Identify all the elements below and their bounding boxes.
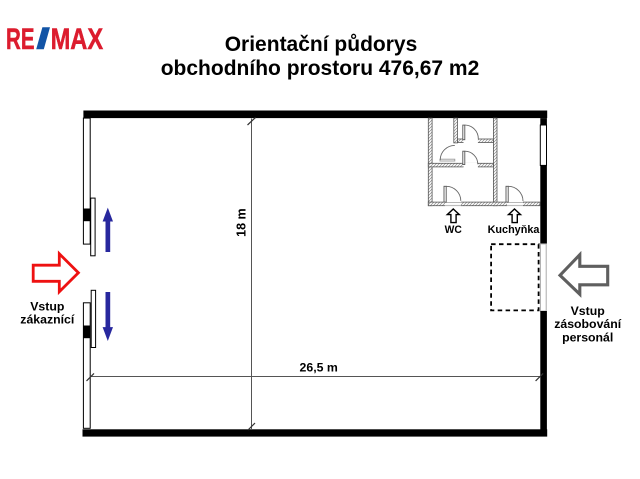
svg-text:obchodního prostoru 476,67 m2: obchodního prostoru 476,67 m2 (161, 57, 480, 80)
svg-text:Orientační půdorys: Orientační půdorys (225, 33, 418, 56)
svg-text:Kuchyňka: Kuchyňka (488, 224, 541, 236)
svg-text:Vstup: Vstup (30, 299, 64, 313)
svg-text:zákaznící: zákaznící (20, 312, 75, 326)
svg-text:zásobování: zásobování (554, 317, 622, 331)
svg-text:RE: RE (6, 23, 35, 56)
svg-text:WC: WC (445, 224, 462, 236)
svg-text:26,5 m: 26,5 m (300, 361, 338, 375)
svg-text:Vstup: Vstup (571, 304, 605, 318)
svg-text:personál: personál (562, 330, 613, 344)
svg-text:MAX: MAX (51, 23, 104, 56)
svg-text:18 m: 18 m (234, 208, 248, 237)
